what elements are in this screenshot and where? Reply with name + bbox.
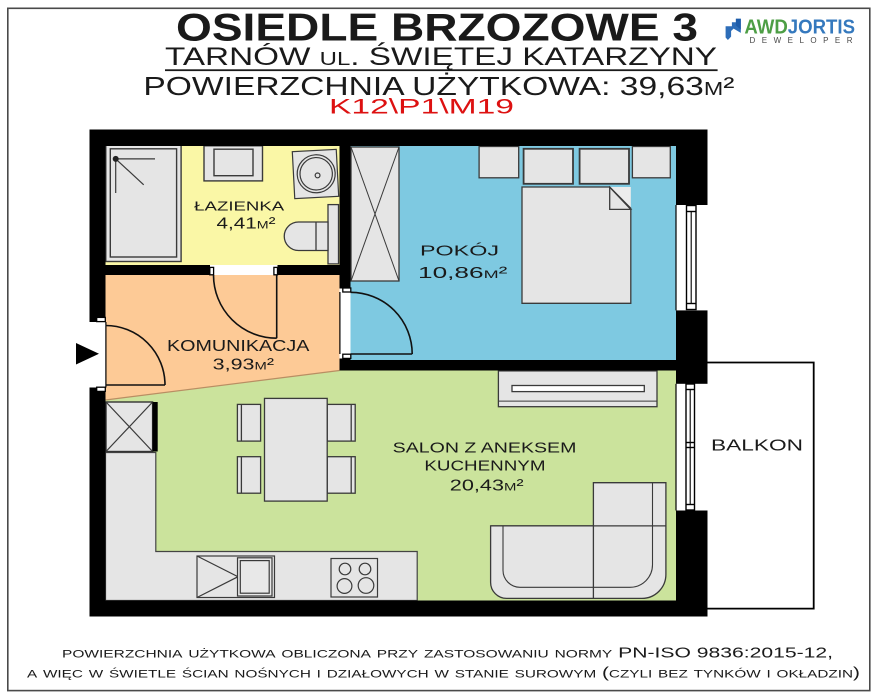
svg-text:a więc w świetle ścian nośnych: a więc w świetle ścian nośnych i działow…: [27, 665, 860, 682]
svg-text:KOMUNIKACJA: KOMUNIKACJA: [167, 338, 310, 355]
svg-text:ŁAZIENKA: ŁAZIENKA: [194, 198, 284, 213]
svg-text:4,41m²: 4,41m²: [217, 216, 277, 233]
svg-text:POKÓJ: POKÓJ: [420, 243, 499, 260]
svg-text:10,86m²: 10,86m²: [418, 265, 508, 282]
svg-text:20,43m²: 20,43m²: [450, 478, 525, 495]
svg-text:K12\P1\M19: K12\P1\M19: [329, 96, 514, 119]
svg-text:powierzchnia użytkowa obliczon: powierzchnia użytkowa obliczona przy zas…: [62, 645, 833, 662]
svg-text:DEWELOPER: DEWELOPER: [750, 36, 853, 45]
svg-text:3,93m²: 3,93m²: [213, 356, 275, 373]
svg-text:KUCHENNYM: KUCHENNYM: [424, 458, 545, 475]
svg-text:BALKON: BALKON: [711, 438, 803, 455]
svg-text:TARNÓW ul. ŚWIĘTEJ KATARZYNY: TARNÓW ul. ŚWIĘTEJ KATARZYNY: [165, 41, 717, 71]
svg-text:SALON Z ANEKSEM: SALON Z ANEKSEM: [393, 439, 577, 456]
